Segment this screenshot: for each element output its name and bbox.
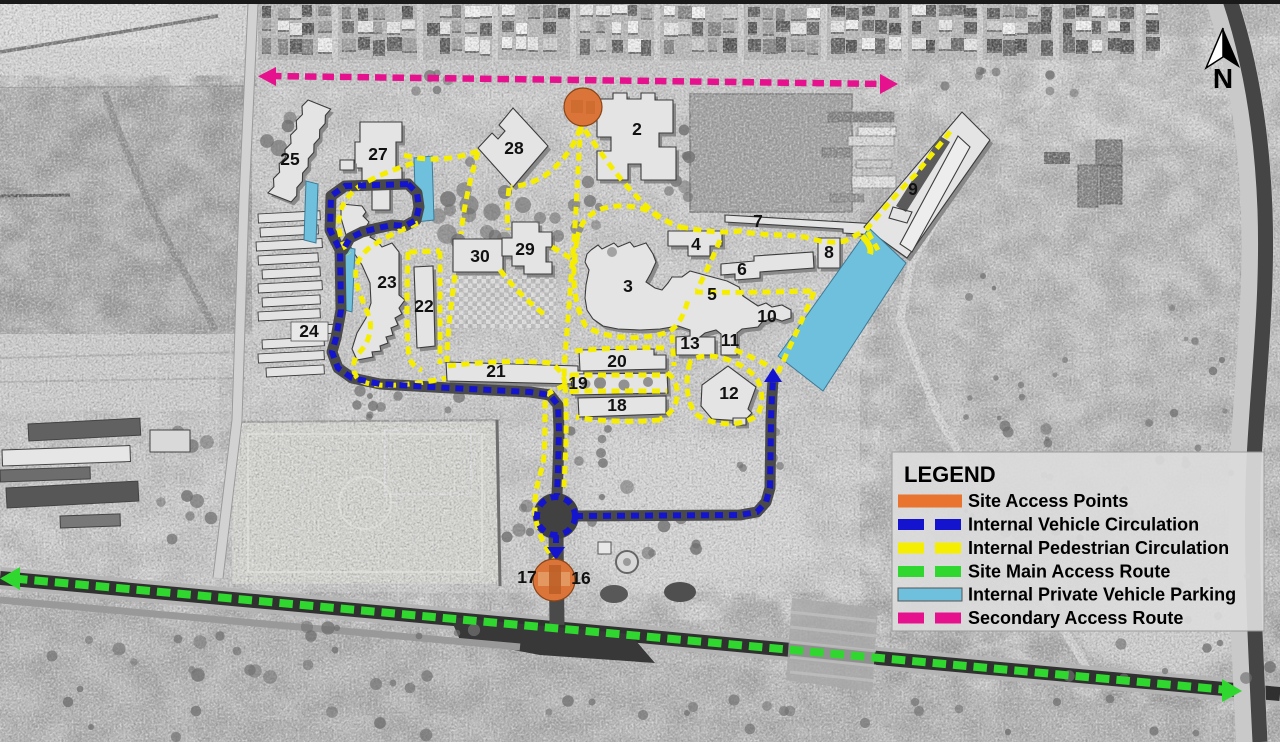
svg-text:LEGEND: LEGEND <box>904 462 996 487</box>
svg-text:Secondary Access Route: Secondary Access Route <box>968 608 1183 628</box>
svg-text:10: 10 <box>757 306 777 326</box>
svg-text:9: 9 <box>908 179 918 199</box>
svg-text:8: 8 <box>824 242 834 262</box>
svg-text:24: 24 <box>299 321 319 341</box>
svg-text:Internal Pedestrian Circulatio: Internal Pedestrian Circulation <box>968 538 1229 558</box>
svg-text:2: 2 <box>632 119 642 139</box>
svg-text:18: 18 <box>607 395 627 415</box>
svg-text:13: 13 <box>680 333 700 353</box>
svg-text:30: 30 <box>470 246 490 266</box>
svg-text:4: 4 <box>691 234 701 254</box>
svg-text:28: 28 <box>504 138 524 158</box>
svg-text:6: 6 <box>737 259 747 279</box>
svg-text:Internal Vehicle Circulation: Internal Vehicle Circulation <box>968 515 1199 535</box>
svg-text:19: 19 <box>568 373 588 393</box>
svg-text:22: 22 <box>414 296 434 316</box>
svg-text:21: 21 <box>486 361 506 381</box>
svg-text:12: 12 <box>719 383 739 403</box>
svg-text:29: 29 <box>515 239 535 259</box>
svg-text:23: 23 <box>377 272 397 292</box>
svg-text:3: 3 <box>623 276 633 296</box>
svg-text:5: 5 <box>707 284 717 304</box>
svg-text:25: 25 <box>280 149 300 169</box>
svg-text:N: N <box>1213 63 1233 94</box>
svg-text:16: 16 <box>571 568 591 588</box>
svg-text:17: 17 <box>517 567 536 587</box>
svg-text:11: 11 <box>721 330 740 350</box>
svg-text:7: 7 <box>753 211 763 231</box>
svg-text:Site Main Access Route: Site Main Access Route <box>968 562 1170 582</box>
svg-text:Site Access Points: Site Access Points <box>968 491 1128 511</box>
svg-text:27: 27 <box>368 144 387 164</box>
svg-text:20: 20 <box>607 351 627 371</box>
svg-text:Internal Private Vehicle Parki: Internal Private Vehicle Parking <box>968 585 1236 605</box>
